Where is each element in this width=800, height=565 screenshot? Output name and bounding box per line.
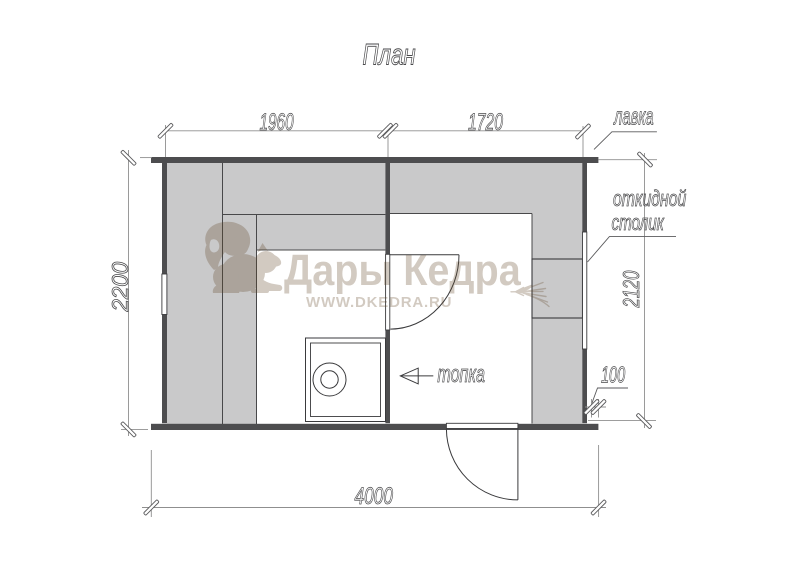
svg-text:1960: 1960 bbox=[260, 110, 295, 136]
svg-text:топка: топка bbox=[437, 362, 485, 388]
svg-text:2200: 2200 bbox=[107, 262, 133, 313]
svg-text:Дары Кедра: Дары Кедра bbox=[284, 245, 521, 294]
svg-text:лавка: лавка bbox=[613, 104, 653, 130]
svg-text:1720: 1720 bbox=[468, 110, 503, 136]
svg-text:4000: 4000 bbox=[355, 483, 394, 509]
svg-text:WWW.DKEDRA.RU: WWW.DKEDRA.RU bbox=[306, 294, 452, 311]
svg-text:2120: 2120 bbox=[619, 271, 644, 309]
svg-text:откидной: откидной bbox=[613, 188, 687, 212]
svg-text:столик: столик bbox=[612, 211, 665, 235]
svg-text:100: 100 bbox=[601, 363, 625, 388]
svg-text:План: План bbox=[363, 37, 416, 71]
